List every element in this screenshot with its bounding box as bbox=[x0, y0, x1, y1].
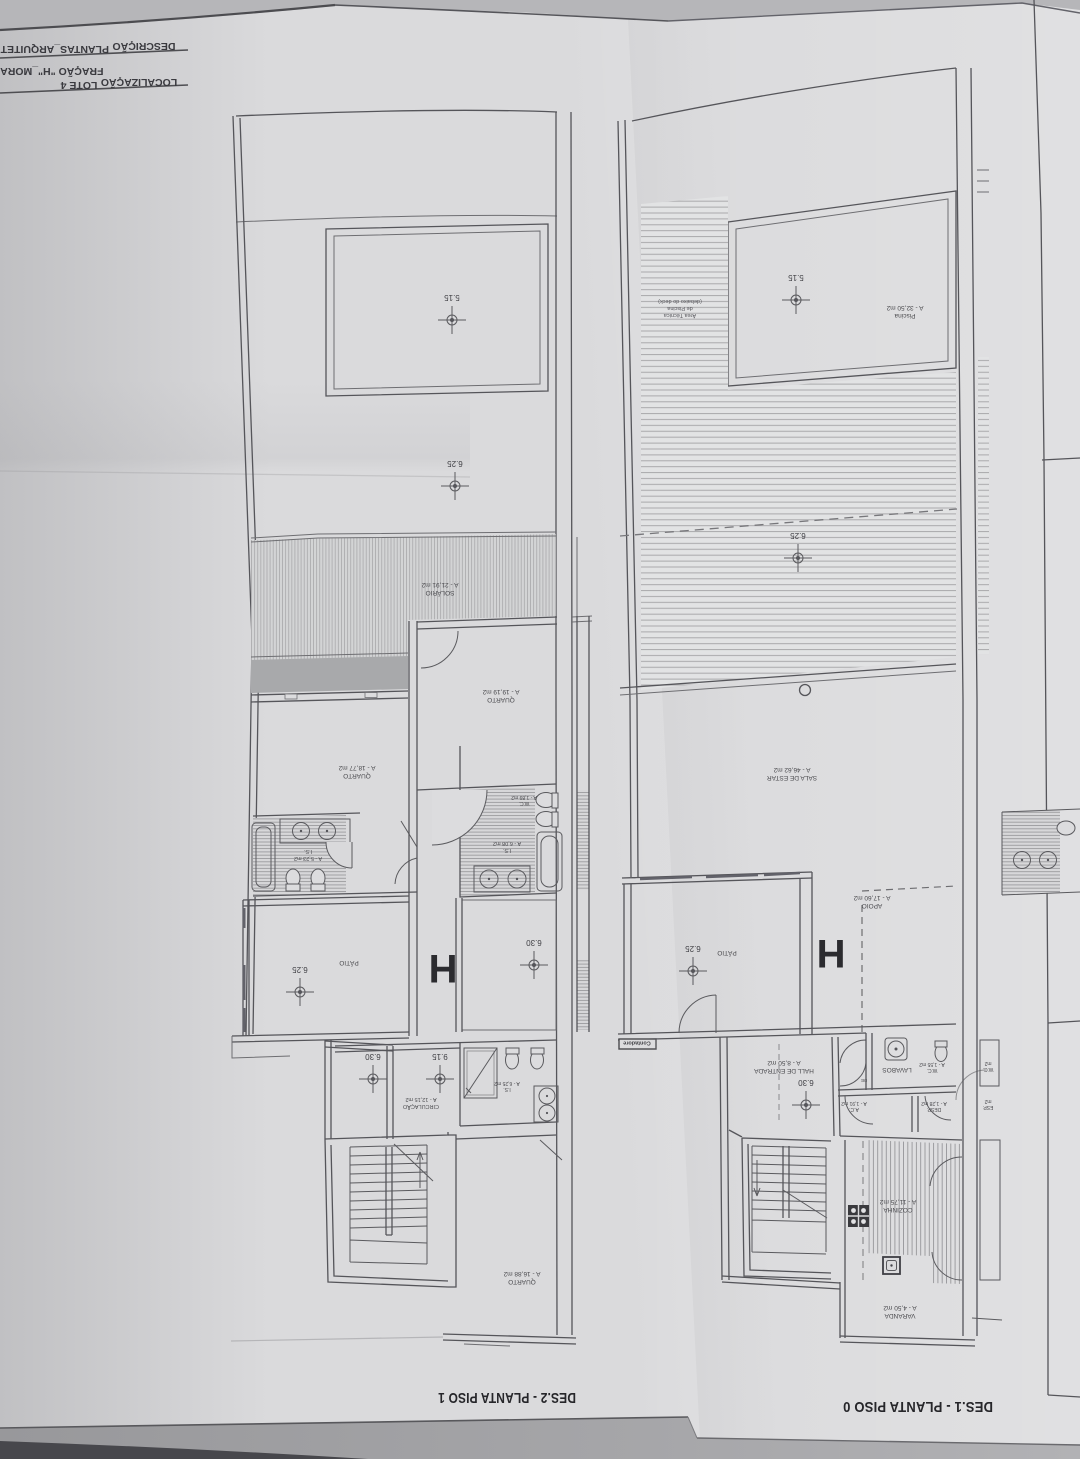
svg-text:PÁTIO: PÁTIO bbox=[339, 959, 359, 968]
svg-text:SOLÁRIO: SOLÁRIO bbox=[426, 589, 455, 598]
svg-text:COZINHA: COZINHA bbox=[883, 1206, 913, 1213]
svg-text:VARANDA: VARANDA bbox=[884, 1312, 916, 1319]
svg-text:A - 6,25 m2: A - 6,25 m2 bbox=[494, 1080, 520, 1086]
svg-text:A - 12,15 m2: A - 12,15 m2 bbox=[405, 1096, 436, 1102]
svg-text:A - 1,89 m2: A - 1,89 m2 bbox=[511, 794, 537, 800]
svg-text:CIRCULAÇÃO: CIRCULAÇÃO bbox=[402, 1103, 439, 1110]
svg-text:m2: m2 bbox=[984, 1098, 991, 1104]
svg-text:PLANTAS_ARQUITETU: PLANTAS_ARQUITETU bbox=[0, 43, 109, 55]
svg-text:6.30: 6.30 bbox=[365, 1052, 381, 1061]
svg-text:A - 5,23 m2: A - 5,23 m2 bbox=[294, 855, 322, 861]
svg-text:A - 4,50 m2: A - 4,50 m2 bbox=[883, 1304, 917, 1311]
svg-text:A - 17,60 m2: A - 17,60 m2 bbox=[853, 894, 890, 901]
svg-text:A - 46,62 m2: A - 46,62 m2 bbox=[773, 766, 810, 773]
svg-text:FRAÇÃO "H"_MORAD: FRAÇÃO "H"_MORAD bbox=[0, 65, 103, 78]
svg-text:A - 1,55 m2: A - 1,55 m2 bbox=[919, 1061, 945, 1067]
svg-text:A - 18,77 m2: A - 18,77 m2 bbox=[338, 764, 375, 771]
svg-text:LOTE 4: LOTE 4 bbox=[60, 79, 97, 91]
svg-text:A - 19,19 m2: A - 19,19 m2 bbox=[482, 688, 519, 695]
svg-text:H: H bbox=[429, 946, 458, 990]
svg-text:DESCRIÇÃO: DESCRIÇÃO bbox=[112, 40, 175, 53]
svg-text:HALL DE ENTRADA: HALL DE ENTRADA bbox=[753, 1067, 813, 1074]
svg-text:6.25: 6.25 bbox=[790, 531, 806, 540]
svg-text:A - 21,91 m2: A - 21,91 m2 bbox=[421, 581, 458, 588]
svg-text:A - 8,50 m2: A - 8,50 m2 bbox=[767, 1059, 801, 1066]
svg-text:6.30: 6.30 bbox=[798, 1078, 814, 1087]
svg-text:5.15: 5.15 bbox=[788, 273, 804, 282]
svg-text:9.15: 9.15 bbox=[432, 1052, 448, 1061]
svg-text:QUARTO: QUARTO bbox=[343, 772, 371, 779]
svg-text:DES.2 - PLANTA PISO 1: DES.2 - PLANTA PISO 1 bbox=[438, 1389, 576, 1405]
svg-text:6.30: 6.30 bbox=[526, 938, 542, 947]
svg-text:SALA DE ESTAR: SALA DE ESTAR bbox=[767, 774, 817, 781]
svg-text:(debaixo do deck): (debaixo do deck) bbox=[658, 298, 702, 304]
svg-text:A - 6,08 m2: A - 6,08 m2 bbox=[493, 840, 521, 846]
svg-text:6.25: 6.25 bbox=[447, 459, 463, 468]
svg-text:I.S.: I.S. bbox=[502, 847, 511, 853]
svg-text:A - 1,28 m2: A - 1,28 m2 bbox=[921, 1100, 947, 1106]
svg-text:H: H bbox=[817, 931, 846, 975]
svg-text:6.25: 6.25 bbox=[685, 944, 701, 953]
svg-text:I.S.: I.S. bbox=[303, 848, 312, 854]
svg-text:LOCALIZAÇÃO: LOCALIZAÇÃO bbox=[101, 76, 177, 89]
svg-text:de Piscina: de Piscina bbox=[666, 305, 692, 311]
svg-text:A - 32,50 m2: A - 32,50 m2 bbox=[886, 304, 923, 311]
svg-text:QUARTO: QUARTO bbox=[508, 1278, 536, 1285]
svg-text:APOIO: APOIO bbox=[862, 902, 883, 909]
svg-text:6.25: 6.25 bbox=[292, 965, 308, 974]
svg-text:Área Técnica: Área Técnica bbox=[663, 312, 696, 319]
svg-text:LAVABOS: LAVABOS bbox=[882, 1066, 912, 1073]
svg-text:QUARTO: QUARTO bbox=[487, 696, 515, 703]
svg-text:DES.1 - PLANTA PISO 0: DES.1 - PLANTA PISO 0 bbox=[843, 1398, 993, 1414]
svg-text:A - 1,91 m2: A - 1,91 m2 bbox=[841, 1100, 867, 1106]
svg-text:Contadore: Contadore bbox=[623, 1040, 651, 1046]
svg-text:PÁTIO: PÁTIO bbox=[717, 949, 737, 958]
svg-text:A - 16,88 m2: A - 16,88 m2 bbox=[503, 1270, 540, 1277]
svg-text:5.15: 5.15 bbox=[444, 293, 460, 302]
svg-text:A - 11,75 m2: A - 11,75 m2 bbox=[879, 1198, 916, 1205]
svg-text:Piscina: Piscina bbox=[894, 312, 915, 319]
svg-text:m2: m2 bbox=[984, 1060, 991, 1066]
